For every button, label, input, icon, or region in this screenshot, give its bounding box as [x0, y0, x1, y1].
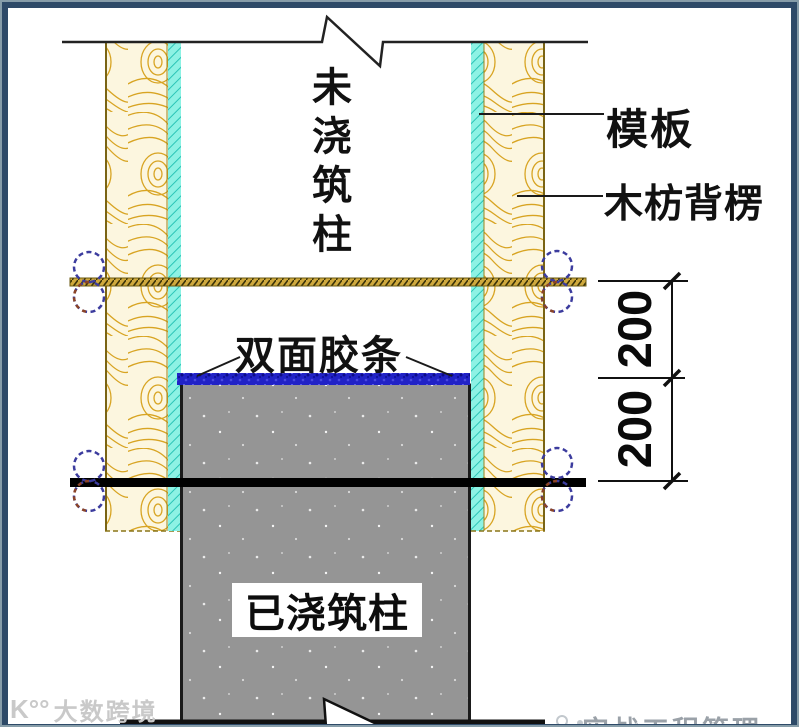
watermark-text: 大数跨境	[54, 692, 158, 727]
poured-column-label-box: 已浇筑柱	[232, 583, 422, 637]
title-unpoured-column: 未浇筑柱	[306, 66, 350, 262]
concrete-column	[180, 383, 471, 727]
left-wood-batten	[105, 42, 181, 531]
brand-dots-icon	[556, 715, 568, 727]
clamp-circle-accents	[74, 282, 557, 511]
clamp-circle	[542, 448, 572, 478]
clamp-circle	[74, 451, 104, 481]
dimension-upper-200: 200	[610, 274, 660, 384]
break-line-top	[62, 17, 588, 66]
left-formwork-panel	[168, 42, 181, 531]
right-formwork-panel	[471, 42, 484, 531]
clamp-circle	[542, 251, 572, 281]
leader-tape-left	[197, 357, 240, 376]
clamp-circle	[74, 252, 104, 282]
clamp-circle	[542, 282, 572, 312]
label-wood-batten: 木枋背楞	[604, 173, 764, 229]
footer-brand-text: 实战工程管理	[582, 709, 762, 727]
watermark-logo-icon: K°°	[10, 694, 50, 725]
leader-tape-right	[406, 357, 452, 376]
label-formwork: 模板	[606, 96, 694, 157]
footer-brand: 实战工程管理	[556, 709, 762, 727]
dimension-lower-200: 200	[610, 374, 660, 484]
clamp-circles	[74, 251, 572, 511]
lower-tie-rod	[70, 478, 586, 487]
construction-detail-diagram: 未浇筑柱 模板 木枋背楞 双面胶条 已浇筑柱 200 200 K°° 大数跨境 …	[0, 0, 799, 727]
label-poured-column: 已浇筑柱	[245, 581, 409, 639]
clamp-circle	[74, 481, 104, 511]
clamp-circle	[74, 282, 104, 312]
tie-rod	[70, 278, 586, 286]
watermark: K°° 大数跨境	[10, 692, 158, 727]
right-wood-batten	[471, 42, 545, 531]
break-line-bottom	[324, 699, 383, 727]
label-double-sided-tape: 双面胶条	[235, 323, 403, 381]
clamp-circle	[542, 481, 572, 511]
